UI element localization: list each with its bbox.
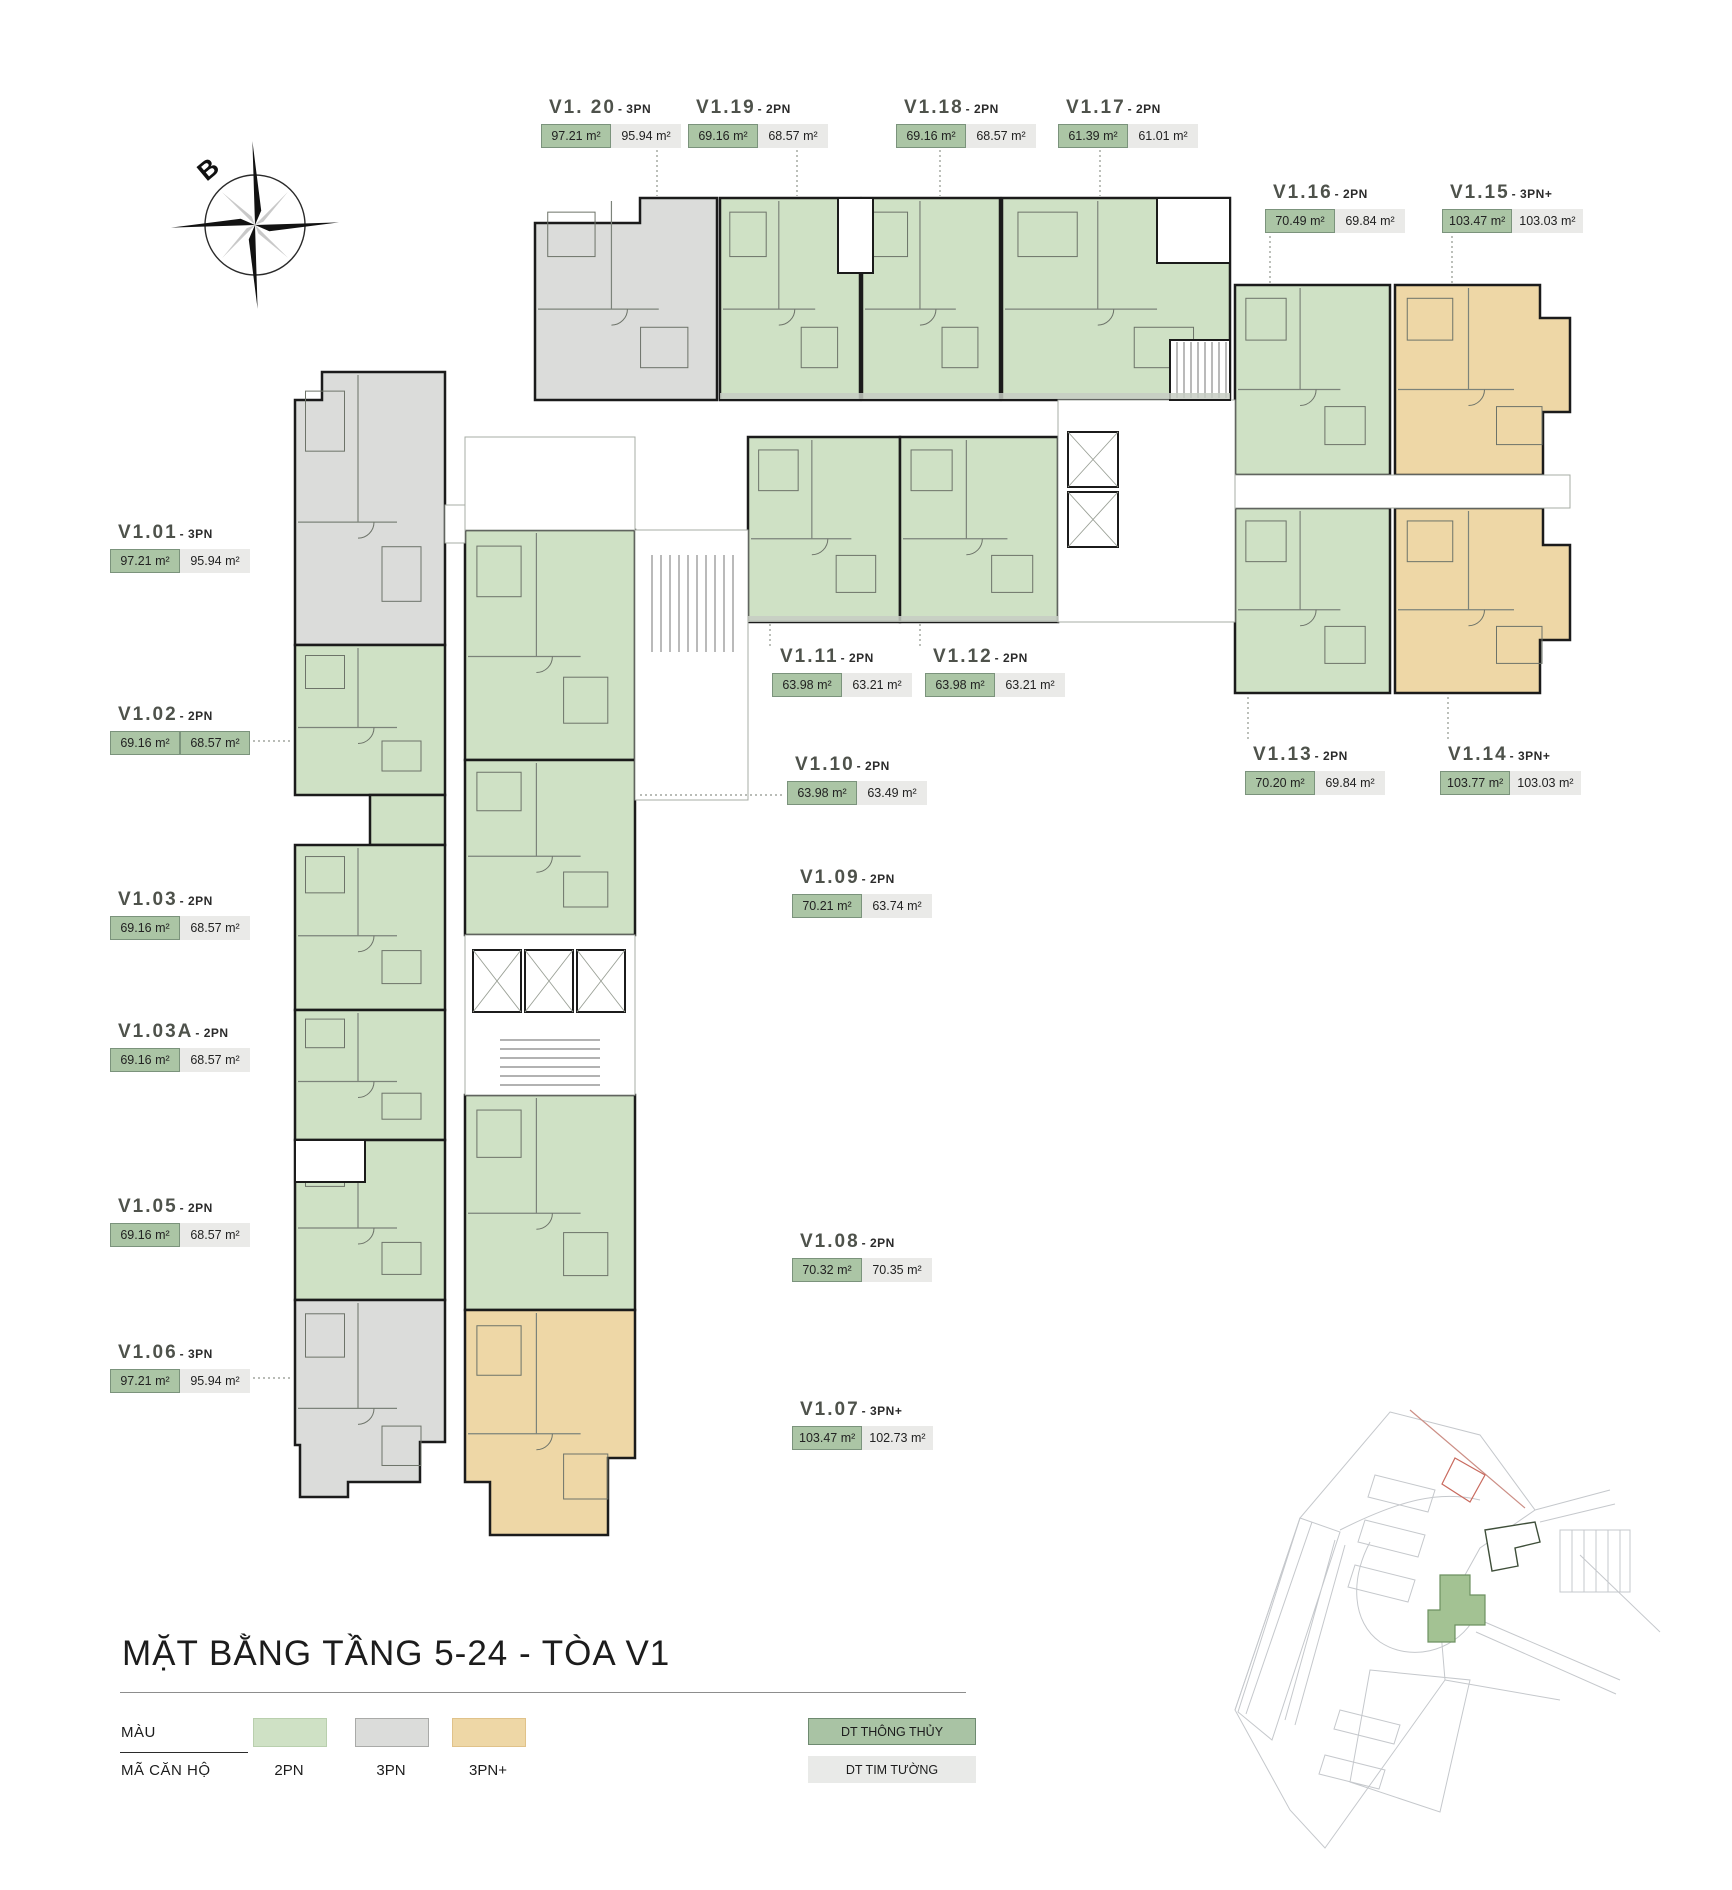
unit-label-v1-12: V1.12- 2PN 63.98 m²63.21 m²: [925, 646, 1065, 697]
compass: B: [165, 135, 345, 315]
unit-net-area: 97.21 m²: [110, 1369, 180, 1393]
unit-label-v1-02: V1.02- 2PN 69.16 m²68.57 m²: [110, 704, 250, 755]
wall-notch: [295, 1140, 365, 1182]
unit-code: V1.12: [933, 646, 993, 667]
unit-type: - 3PN+: [1510, 749, 1551, 763]
site-parcel-strip: [1238, 1518, 1345, 1740]
legend-swatch-3pn: [355, 1718, 429, 1747]
unit-code: V1.01: [118, 522, 178, 543]
unit-label-v1-09: V1.09- 2PN 70.21 m²63.74 m²: [792, 867, 932, 918]
unit-code: V1.15: [1450, 182, 1510, 203]
unit-label-v1-16: V1.16- 2PN 70.49 m²69.84 m²: [1265, 182, 1405, 233]
unit-net-area: 69.16 m²: [110, 1048, 180, 1072]
unit-v1-03: [295, 845, 445, 1010]
wall-notch: [1157, 198, 1230, 263]
legend-label-3pn: 3PN: [355, 1762, 427, 1779]
site-parcel-right: [1560, 1530, 1630, 1592]
site-red-boundary: [1410, 1410, 1525, 1508]
compass-north-label: B: [191, 152, 225, 187]
legend-net-area-key: DT THÔNG THỦY: [808, 1718, 976, 1745]
unit-v1-18: [862, 198, 1000, 400]
unit-net-area: 61.39 m²: [1058, 124, 1128, 148]
unit-label-v1-17: V1.17- 2PN 61.39 m²61.01 m²: [1058, 97, 1198, 148]
unit-label-v1-06: V1.06- 3PN 97.21 m²95.94 m²: [110, 1342, 250, 1393]
site-house-rows: [1319, 1475, 1470, 1812]
unit-net-area: 70.20 m²: [1245, 771, 1315, 795]
wing-connector: [370, 795, 445, 845]
unit-code: V1.14: [1448, 744, 1508, 765]
unit-gross-area: 68.57 m²: [180, 1048, 250, 1072]
unit-net-area: 69.16 m²: [896, 124, 966, 148]
unit-label-v1-13: V1.13- 2PN 70.20 m²69.84 m²: [1245, 744, 1385, 795]
page-title: MẶT BẰNG TẦNG 5-24 - TÒA V1: [122, 1634, 670, 1674]
unit-gross-area: 63.21 m²: [995, 673, 1065, 697]
unit-v1-08: [465, 1095, 635, 1310]
unit-type: - 2PN: [966, 102, 999, 116]
unit-code: V1.11: [780, 646, 839, 667]
unit-v1-11: [748, 437, 900, 622]
unit-type: - 2PN: [180, 894, 213, 908]
unit-v1-12: [900, 437, 1058, 622]
unit-net-area: 70.21 m²: [792, 894, 862, 918]
unit-type: - 2PN: [841, 651, 874, 665]
unit-gross-area: 68.57 m²: [758, 124, 828, 148]
unit-gross-area: 95.94 m²: [180, 549, 250, 573]
unit-gross-area: 63.21 m²: [842, 673, 912, 697]
unit-v1-15: [1395, 285, 1570, 475]
unit-gross-area: 95.94 m²: [180, 1369, 250, 1393]
unit-gross-area: 102.73 m²: [862, 1426, 932, 1450]
legend-swatch-2pn: [253, 1718, 327, 1747]
unit-label-v1-07: V1.07- 3PN+ 103.47 m²102.73 m²: [792, 1399, 933, 1450]
unit-v1-01: [295, 372, 445, 645]
unit-type: - 2PN: [1335, 187, 1368, 201]
unit-net-area: 103.47 m²: [1442, 209, 1512, 233]
legend-separator: [120, 1752, 248, 1753]
unit-v1-14: [1395, 508, 1570, 693]
unit-gross-area: 68.57 m²: [180, 916, 250, 940]
unit-v1-07: [465, 1310, 635, 1535]
legend-swatch-3pnplus: [452, 1718, 526, 1747]
unit-code: V1.17: [1066, 97, 1126, 118]
unit-code: V1.10: [795, 754, 855, 775]
unit-gross-area: 61.01 m²: [1128, 124, 1198, 148]
wall-notch: [838, 198, 873, 273]
unit-net-area: 103.47 m²: [792, 1426, 862, 1450]
corridor: [465, 437, 635, 530]
unit-type: - 2PN: [180, 709, 213, 723]
unit-net-area: 69.16 m²: [688, 124, 758, 148]
unit-gross-area: 69.84 m²: [1315, 771, 1385, 795]
unit-v1-02: [295, 645, 445, 795]
unit-type: - 3PN+: [1512, 187, 1553, 201]
unit-net-area: 97.21 m²: [541, 124, 611, 148]
unit-type: - 2PN: [857, 759, 890, 773]
site-map: [1140, 1380, 1700, 1860]
unit-type: - 2PN: [862, 872, 895, 886]
unit-label-v1-10: V1.10- 2PN 63.98 m²63.49 m²: [787, 754, 927, 805]
legend-gross-area-key: DT TIM TƯỜNG: [808, 1756, 976, 1783]
unit-code: V1.03A: [118, 1021, 193, 1042]
unit-code: V1.05: [118, 1196, 178, 1217]
unit-type: - 2PN: [995, 651, 1028, 665]
unit-label-v1-01: V1.01- 3PN 97.21 m²95.94 m²: [110, 522, 250, 573]
unit-code: V1.03: [118, 889, 178, 910]
unit-v1-10: [465, 530, 635, 760]
legend-color-label: MÀU: [121, 1724, 156, 1741]
unit-gross-area: 69.84 m²: [1335, 209, 1405, 233]
corridor: [1235, 475, 1570, 508]
unit-code: V1.06: [118, 1342, 178, 1363]
unit-code: V1.13: [1253, 744, 1313, 765]
unit-v1-16: [1235, 285, 1390, 475]
unit-code: V1.09: [800, 867, 860, 888]
unit-code: V1.08: [800, 1231, 860, 1252]
unit-gross-area: 68.57 m²: [966, 124, 1036, 148]
unit-type: - 2PN: [758, 102, 791, 116]
unit-gross-area: 70.35 m²: [862, 1258, 932, 1282]
unit-type: - 2PN: [862, 1236, 895, 1250]
unit-label-v1-11: V1.11- 2PN 63.98 m²63.21 m²: [772, 646, 912, 697]
unit-label-v1-08: V1.08- 2PN 70.32 m²70.35 m²: [792, 1231, 932, 1282]
legend-code-label: MÃ CĂN HỘ: [121, 1762, 211, 1779]
unit-gross-area: 95.94 m²: [611, 124, 681, 148]
unit-code: V1. 20: [549, 97, 616, 118]
unit-code: V1.18: [904, 97, 964, 118]
unit-code: V1.16: [1273, 182, 1333, 203]
unit-type: - 3PN: [180, 1347, 213, 1361]
unit-gross-area: 103.03 m²: [1512, 209, 1582, 233]
unit-v1-03a: [295, 1010, 445, 1140]
unit-type: - 2PN: [195, 1026, 228, 1040]
unit-type: - 3PN: [180, 527, 213, 541]
unit-label-v1-05: V1.05- 2PN 69.16 m²68.57 m²: [110, 1196, 250, 1247]
unit-type: - 2PN: [180, 1201, 213, 1215]
unit-type: - 3PN: [618, 102, 651, 116]
unit-v1-13: [1235, 508, 1390, 693]
unit-net-area: 63.98 m²: [925, 673, 995, 697]
unit-type: - 3PN+: [862, 1404, 903, 1418]
unit-net-area: 97.21 m²: [110, 549, 180, 573]
title-rule: [120, 1692, 966, 1693]
unit-v1-20: [535, 198, 717, 400]
unit-gross-area: 103.03 m²: [1510, 771, 1580, 795]
unit-type: - 2PN: [1315, 749, 1348, 763]
site-building-outline: [1485, 1522, 1540, 1571]
unit-label-v1-18: V1.18- 2PN 69.16 m²68.57 m²: [896, 97, 1036, 148]
site-red-parcel: [1442, 1458, 1485, 1502]
unit-net-area: 103.77 m²: [1440, 771, 1510, 795]
unit-net-area: 63.98 m²: [787, 781, 857, 805]
unit-gross-area: 68.57 m²: [180, 731, 250, 755]
corridor-bridge: [445, 505, 465, 543]
unit-net-area: 69.16 m²: [110, 731, 180, 755]
unit-net-area: 70.49 m²: [1265, 209, 1335, 233]
unit-code: V1.07: [800, 1399, 860, 1420]
unit-code: V1.02: [118, 704, 178, 725]
unit-net-area: 69.16 m²: [110, 916, 180, 940]
unit-gross-area: 63.49 m²: [857, 781, 927, 805]
unit-label-v1-19: V1.19- 2PN 69.16 m²68.57 m²: [688, 97, 828, 148]
unit-code: V1.19: [696, 97, 756, 118]
unit-gross-area: 63.74 m²: [862, 894, 932, 918]
stair-core: [1170, 340, 1230, 400]
unit-label-v1-14: V1.14- 3PN+ 103.77 m²103.03 m²: [1440, 744, 1581, 795]
unit-label-v1-03: V1.03- 2PN 69.16 m²68.57 m²: [110, 889, 250, 940]
unit-type: - 2PN: [1128, 102, 1161, 116]
floorplan-page: { "page": { "title": "MẶT BẰNG TẦNG 5-24…: [0, 0, 1732, 1890]
unit-label-v1-20: V1. 20- 3PN 97.21 m²95.94 m²: [541, 97, 681, 148]
unit-gross-area: 68.57 m²: [180, 1223, 250, 1247]
unit-label-v1-03a: V1.03A- 2PN 69.16 m²68.57 m²: [110, 1021, 250, 1072]
unit-net-area: 63.98 m²: [772, 673, 842, 697]
unit-v1-06: [295, 1300, 445, 1497]
unit-v1-09: [465, 760, 635, 935]
unit-net-area: 70.32 m²: [792, 1258, 862, 1282]
legend-label-3pnplus: 3PN+: [452, 1762, 524, 1779]
unit-label-v1-15: V1.15- 3PN+ 103.47 m²103.03 m²: [1442, 182, 1583, 233]
legend-label-2pn: 2PN: [253, 1762, 325, 1779]
unit-net-area: 69.16 m²: [110, 1223, 180, 1247]
